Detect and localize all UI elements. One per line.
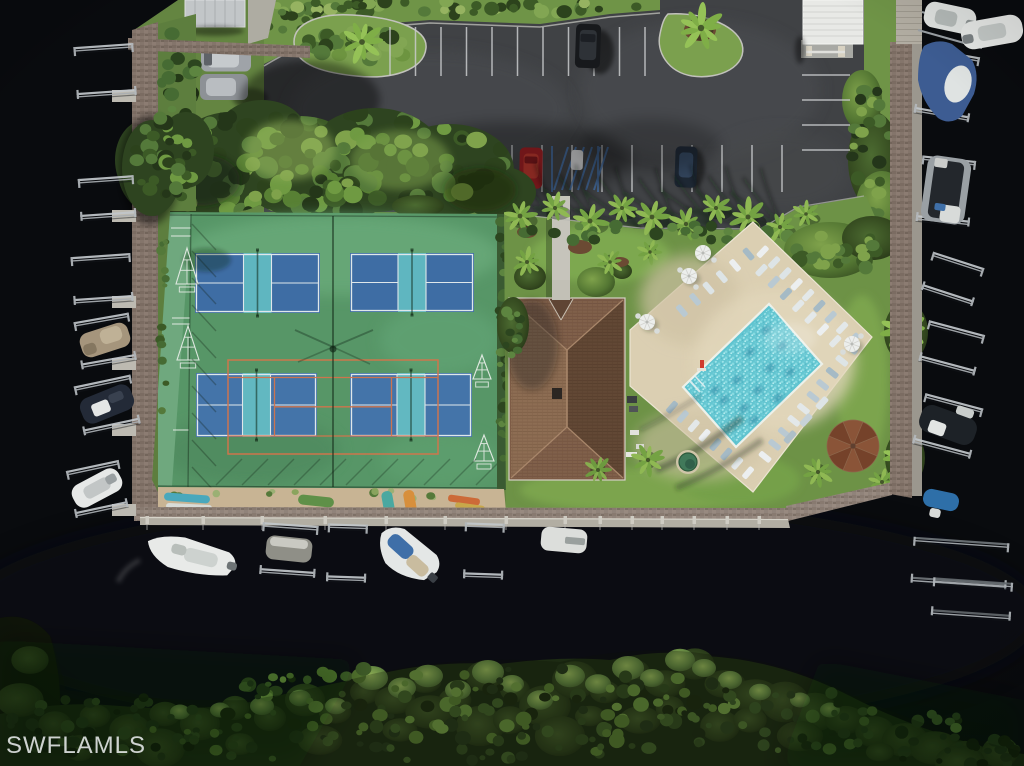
svg-text:SWFLAMLS: SWFLAMLS [6,732,146,759]
